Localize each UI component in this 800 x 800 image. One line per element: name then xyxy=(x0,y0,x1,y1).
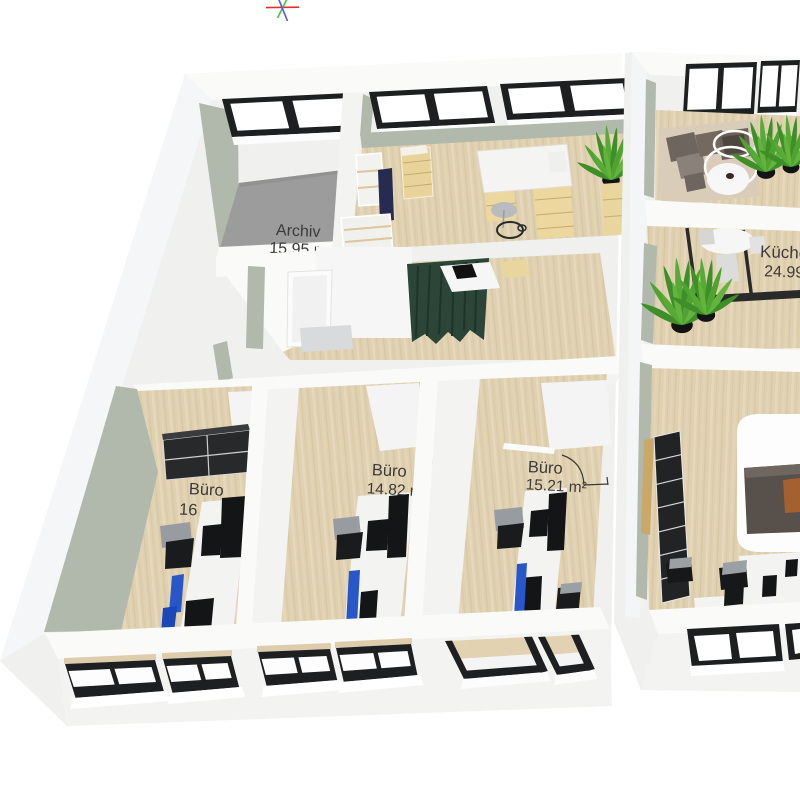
svg-text:24.99: 24.99 xyxy=(764,263,800,281)
svg-text:Büro: Büro xyxy=(371,461,407,481)
svg-text:16: 16 xyxy=(179,501,198,520)
svg-text:Büro: Büro xyxy=(527,458,563,478)
svg-text:Büro: Büro xyxy=(188,480,224,500)
svg-text:Archiv: Archiv xyxy=(276,222,321,241)
svg-text:Küche: Küche xyxy=(760,242,800,263)
svg-text:15.21 m²: 15.21 m² xyxy=(525,476,587,496)
